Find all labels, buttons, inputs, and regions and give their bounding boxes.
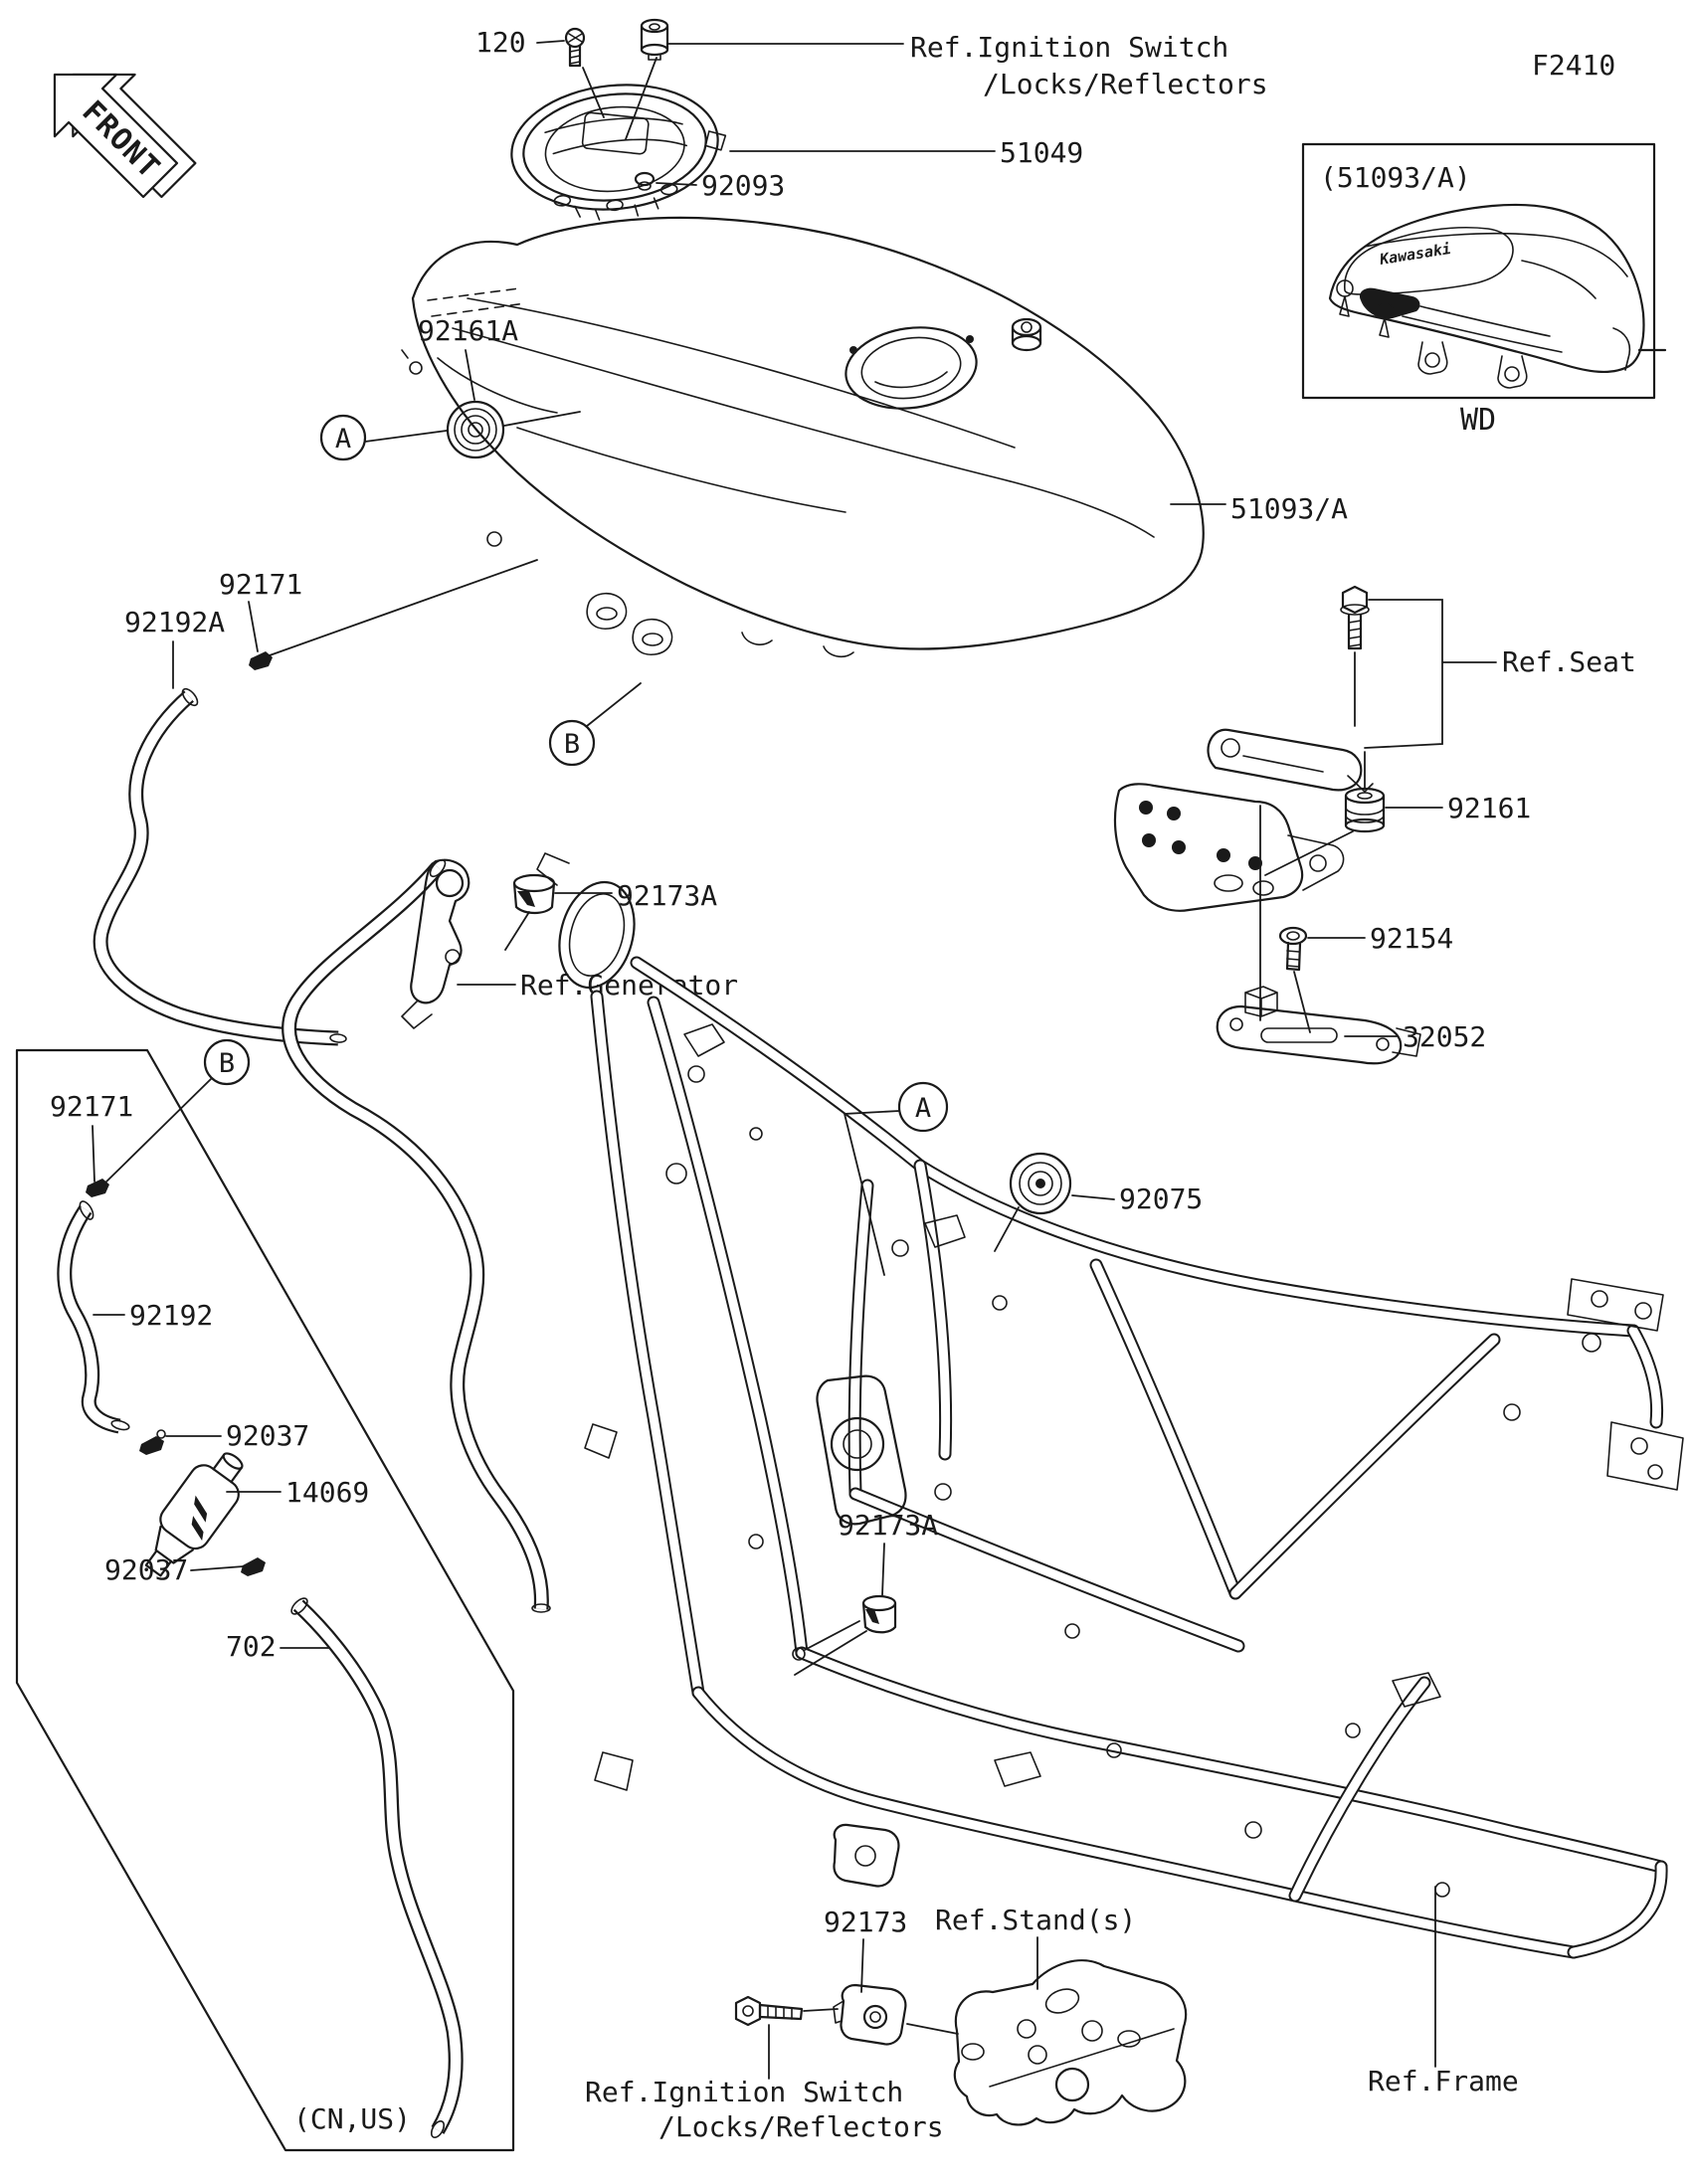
ref-ignition-switch-top-line2: /Locks/Reflectors: [983, 68, 1268, 100]
frame-clamp-upper-part: [834, 1825, 898, 1887]
parts-diagram-page: FRONT F2410 120 Ref.Ignition Switch /Loc…: [0, 0, 1691, 2184]
tank-filler-neck: [841, 319, 1040, 417]
frame-tubes: [597, 963, 1661, 1952]
leader-92173: [861, 1939, 863, 1992]
clamp-92037-upper-part: [139, 1436, 164, 1455]
bottom-fasteners-group: 92173 Ref.Stand(s): [585, 1887, 1519, 2143]
ref-frame-label: Ref.Frame: [1368, 2065, 1519, 2097]
ref-ignition-switch-top-line1: Ref.Ignition Switch: [910, 31, 1228, 64]
part-label-92173A-frame: 92173A: [838, 1509, 938, 1542]
bolt-92173-part: [736, 1997, 802, 2025]
part-label-92037-upper: 92037: [226, 1419, 309, 1452]
leader-ref-seat: [1365, 600, 1496, 748]
callout-a-left: A: [321, 416, 447, 459]
svg-text:B: B: [564, 729, 580, 760]
svg-text:B: B: [219, 1048, 235, 1079]
part-label-92037-lower: 92037: [104, 1553, 188, 1586]
bolt-92154-part: [1280, 928, 1306, 970]
clamp-92037-upper-screw: [157, 1430, 165, 1438]
screw-120-part: [566, 29, 584, 66]
grommet-92075-group: 92075: [995, 1154, 1203, 1251]
leader-92173a-to-bracket: [505, 912, 529, 950]
fuel-cap-part: [505, 75, 733, 229]
ref-ignition-bottom-line2: /Locks/Reflectors: [658, 2110, 944, 2143]
svg-text:A: A: [915, 1093, 931, 1124]
inset-brand-logo: Kawasaki: [1378, 240, 1452, 269]
svg-text:A: A: [335, 424, 351, 455]
figure-code: F2410: [1532, 49, 1615, 82]
ref-ignition-bottom-line1: Ref.Ignition Switch: [585, 2076, 903, 2108]
ref-generator-label: Ref.Generator: [520, 969, 738, 1001]
leader-bolt-to-clamp: [804, 2009, 838, 2011]
clamp-92037-lower-part: [241, 1557, 266, 1576]
leader-hole-to-damper: [805, 1621, 859, 1650]
inset-decal-view: (51093/A) Kawasaki WD: [1303, 144, 1665, 438]
frame-part: [537, 853, 1683, 1952]
leader-92171-box: [93, 1126, 94, 1182]
grommet-92093-part: [636, 173, 654, 190]
leader-120: [537, 41, 564, 43]
hose-702-part: [288, 1595, 456, 2139]
bracket-32052-part: [1218, 987, 1420, 1063]
fuel-tank-part: 51093/A B: [402, 218, 1348, 911]
part-label-92075: 92075: [1119, 1183, 1203, 1215]
region-variant-label: (CN,US): [293, 2102, 411, 2135]
leader-92161A: [466, 350, 474, 400]
cn-us-variant-box: (CN,US) B 92171 92192 92037: [17, 1040, 513, 2150]
leader-bushing-to-cap: [626, 58, 657, 139]
clamp-92171-top-part: [249, 651, 273, 670]
ref-seat-label: Ref.Seat: [1502, 645, 1636, 678]
callout-b-tank: B: [550, 683, 641, 765]
leader-clamp-to-stand: [907, 2024, 958, 2034]
leader-92154-to-bracket: [1294, 972, 1310, 1032]
damper-92161-part: [1346, 789, 1384, 831]
part-label-92161A: 92161A: [418, 314, 518, 347]
front-direction-arrow: FRONT: [24, 35, 210, 221]
leader-92173a-frame: [882, 1544, 884, 1595]
grommet-92075-part: [1011, 1154, 1070, 1213]
part-label-92192: 92192: [129, 1299, 213, 1332]
part-label-92171-box: 92171: [50, 1090, 133, 1123]
leader-92075: [1072, 1195, 1114, 1199]
fuel-tank-parts-diagram: FRONT F2410 120 Ref.Ignition Switch /Loc…: [0, 0, 1691, 2184]
seat-bolt-part: [1341, 587, 1369, 648]
damper-92173a-frame-group: 92173A: [793, 1509, 938, 1675]
ref-stands-label: Ref.Stand(s): [935, 1904, 1136, 1936]
leader-92171-top: [249, 602, 258, 651]
damper-92173a-frame-part: [863, 1596, 895, 1632]
inset-tank-drawing: Kawasaki: [1330, 205, 1665, 388]
part-label-92093: 92093: [701, 169, 785, 202]
part-label-14069: 14069: [285, 1476, 369, 1509]
leader-92171-to-tank: [270, 560, 537, 655]
tank-mount-tabs: [487, 532, 853, 656]
part-label-92171-top: 92171: [219, 568, 302, 601]
leader-92037-lower: [191, 1566, 244, 1570]
inset-caption: WD: [1460, 403, 1496, 438]
part-label-51093A: 51093/A: [1230, 492, 1348, 525]
tank-rear-bracket: [1115, 784, 1344, 910]
stand-bracket-part: [955, 1960, 1186, 2124]
damper-92173a-generator-part: [514, 875, 554, 913]
bracket-32052-group: 92154 32052: [1218, 922, 1487, 1063]
part-label-120: 120: [475, 26, 526, 59]
leader-damper-to-tank: [504, 412, 580, 426]
fuel-cap-assembly: 120 Ref.Ignition Switch /Locks/Reflector…: [475, 20, 1268, 228]
part-label-32052: 32052: [1403, 1020, 1486, 1053]
part-label-92161: 92161: [1447, 792, 1531, 824]
seat-mount-group: Ref.Seat 92161: [1209, 587, 1636, 1020]
ignition-bushing-part: [642, 20, 667, 60]
inset-title: (51093/A): [1320, 161, 1471, 194]
part-label-51049: 51049: [1000, 136, 1083, 169]
clamp-92173-part: [834, 1985, 905, 2044]
part-label-702: 702: [226, 1630, 277, 1663]
damper-92161a-group: 92161A A: [321, 314, 580, 459]
part-label-92154: 92154: [1370, 922, 1453, 955]
part-label-92192A: 92192A: [124, 606, 225, 638]
seat-bracket-part: [1209, 730, 1373, 792]
part-label-92173: 92173: [824, 1906, 907, 1938]
